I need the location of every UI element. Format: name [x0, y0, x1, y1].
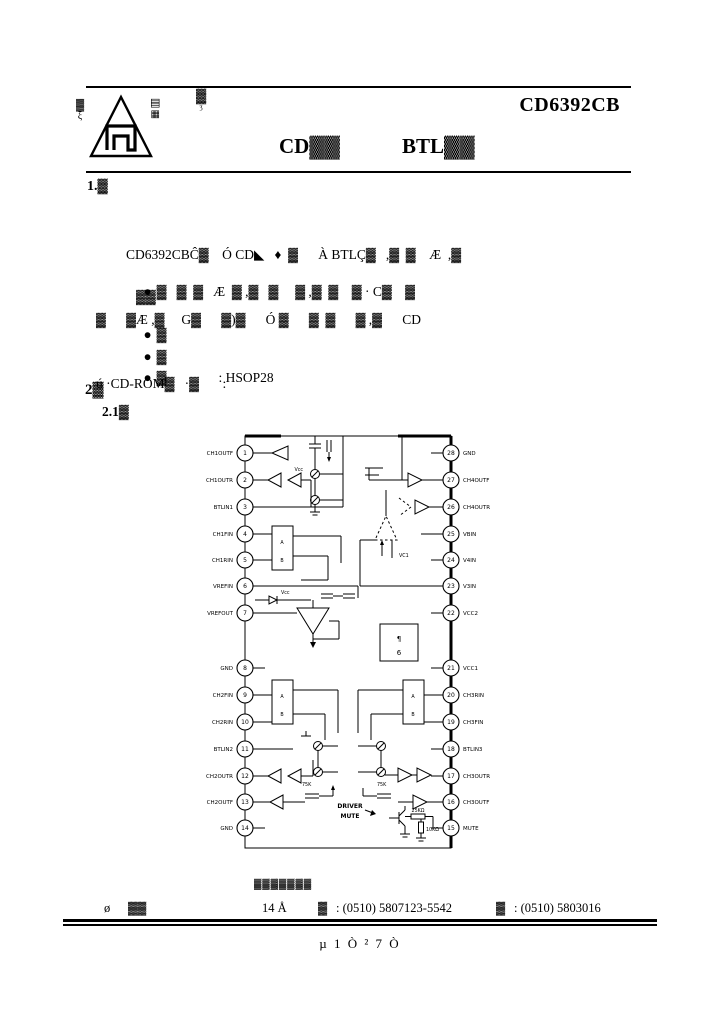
- footer-address-blob: ▓▓: [128, 901, 146, 916]
- pin-28: 28GND: [431, 445, 476, 461]
- ic-body: [245, 436, 451, 848]
- pin-6: 6VREFIN: [213, 578, 265, 594]
- amp-a-label: A: [280, 694, 284, 700]
- pin-label: CH3OUTR: [463, 774, 490, 780]
- pin-8: 8GND: [220, 660, 265, 676]
- pin-label: CH3FIN: [463, 720, 483, 726]
- pin-15: 15MUTE: [431, 820, 479, 836]
- pin-label: BTLIN1: [214, 505, 233, 511]
- pin-number: 27: [447, 477, 455, 484]
- pin-label: BTLIN2: [214, 747, 233, 753]
- pin-number: 3: [243, 504, 247, 511]
- footer-mark: ø: [104, 901, 110, 916]
- pin-label: CH1FIN: [213, 532, 233, 538]
- pin-number: 15: [447, 825, 455, 832]
- pin-25: 25VBIN: [431, 526, 476, 542]
- paragraph-line: CD6392CBĈ▓ Ó CD◣ ♦ ▓ À BTLÇ▓ ,▓ ▓ Æ ,▓: [96, 244, 632, 266]
- pin-label: GND: [220, 826, 233, 832]
- pin-4: 4CH1FIN: [213, 526, 265, 542]
- pin-label: CH2FIN: [213, 693, 233, 699]
- internal-circuit: [253, 436, 443, 841]
- amp-b-label: B: [280, 712, 283, 718]
- pin-14: 14GND: [220, 820, 265, 836]
- pin-label: CH4OUTR: [463, 505, 490, 511]
- pin-number: 8: [243, 665, 247, 672]
- pin-11: 11BTLIN2: [214, 741, 265, 757]
- vcc-label: Vcc: [294, 467, 303, 473]
- pin-number: 4: [243, 531, 247, 538]
- center-block-glyph: 6: [397, 649, 402, 657]
- pin-number: 7: [243, 610, 247, 617]
- pin-number: 12: [241, 773, 249, 780]
- pin-label: CH2RIN: [212, 720, 233, 726]
- footer-address-no: 14 Å: [262, 901, 287, 916]
- company-logo: [88, 92, 154, 162]
- amp-b-label: B: [411, 712, 414, 718]
- pin-label: CH1OUTR: [206, 478, 233, 484]
- pin-label: GND: [220, 666, 233, 672]
- pin-27: 27CH4OUTF: [431, 472, 489, 488]
- company-name: ▓▓▓▓▓▓▓: [254, 879, 312, 890]
- pin-number: 25: [447, 531, 455, 538]
- logo-spiral-glyph: [107, 126, 135, 150]
- pin-number: 11: [241, 746, 249, 753]
- pin-number: 16: [447, 799, 455, 806]
- pin-21: 21VCC1: [431, 660, 478, 676]
- pin-7: 7VREFOUT: [207, 605, 265, 621]
- pin-5: 5CH1RIN: [212, 552, 265, 568]
- tel-label: ▓: [318, 901, 327, 916]
- pin-number: 6: [243, 583, 247, 590]
- pin-9: 9CH2FIN: [213, 687, 265, 703]
- pin-label: VREFIN: [213, 584, 233, 590]
- pin-number: 28: [447, 450, 455, 457]
- tel-number: : (0510) 5807123-5542: [336, 901, 452, 916]
- pin-number: 2: [243, 477, 247, 484]
- left-pins: 1CH1OUTF2CH1OUTR3BTLIN14CH1FIN5CH1RIN6VR…: [206, 445, 265, 836]
- pin-label: VCC2: [463, 611, 478, 617]
- pin-label: VCC1: [463, 666, 478, 672]
- pin-number: 18: [447, 746, 455, 753]
- pin-23: 23V3IN: [431, 578, 476, 594]
- pin-number: 22: [447, 610, 455, 617]
- section1-paragraph: CD6392CBĈ▓ Ó CD◣ ♦ ▓ À BTLÇ▓ ,▓ ▓ Æ ,▓ ▓…: [96, 201, 632, 438]
- pin-label: CH1OUTF: [207, 451, 233, 457]
- pin-16: 16CH3OUTF: [431, 794, 489, 810]
- feature-bullet-1-cont: ▓▓: [136, 289, 156, 305]
- pin-label: MUTE: [463, 826, 479, 832]
- pin-12: 12CH2OUTR: [206, 768, 265, 784]
- feature-bullet-package: ●▓: HSOP28: [130, 354, 274, 402]
- pin-18: 18BTLIN3: [431, 741, 483, 757]
- pin-22: 22VCC2: [431, 605, 478, 621]
- pin-number: 9: [243, 692, 247, 699]
- amp-a-label: A: [280, 540, 284, 546]
- feature-bullet-1: ●▓ ▓ ▓ Æ ▓ ,▓ ▓ ▓ ,▓ ▓ ▓ · C▓ ▓: [130, 268, 415, 316]
- pin-label: CH4OUTF: [463, 478, 489, 484]
- pin-label: CH2OUTF: [207, 800, 233, 806]
- ic-block-diagram: Vcc Vcc VC1 A B A B A B ¶ 6 DRIVER MUTE …: [193, 428, 538, 860]
- section2-subheading: 2.1▓: [102, 404, 129, 420]
- pin-number: 13: [241, 799, 249, 806]
- pin-19: 19CH3FIN: [431, 714, 483, 730]
- pin-1: 1CH1OUTF: [207, 445, 265, 461]
- datasheet-page: ▓ ξ ▤ ▦ ▓ ʒ CD6392CB CD▓▓ BTL▓▓ 1.▓ CD63…: [0, 0, 720, 1012]
- amp-a-label: A: [411, 694, 415, 700]
- pin-label: CH3RIN: [463, 693, 484, 699]
- header-top-rule: [86, 86, 631, 88]
- vc1-label: VC1: [399, 553, 409, 559]
- fax-label: ▓: [496, 901, 505, 916]
- pin-13: 13CH2OUTF: [207, 794, 265, 810]
- pin-number: 23: [447, 583, 455, 590]
- footer-rule-thick: [63, 919, 657, 922]
- pin-number: 17: [447, 773, 455, 780]
- pin-number: 24: [447, 557, 455, 564]
- pin-number: 21: [447, 665, 455, 672]
- center-block-glyph: ¶: [397, 635, 401, 643]
- resistor-25k-label: 25KΩ: [412, 808, 425, 814]
- pin-number: 10: [241, 719, 249, 726]
- pin-3: 3BTLIN1: [214, 499, 265, 515]
- pin-20: 20CH3RIN: [431, 687, 484, 703]
- pin-label: GND: [463, 451, 476, 457]
- pin-number: 26: [447, 504, 455, 511]
- doc-title-btl: BTL▓▓: [402, 134, 475, 159]
- footer-rule-thin: [63, 924, 657, 926]
- amp-b-label: B: [280, 558, 283, 564]
- pin-number: 5: [243, 557, 247, 564]
- header-bottom-rule: [86, 171, 631, 173]
- section2-heading: 2▓: [85, 382, 103, 399]
- package-type: : HSOP28: [219, 370, 274, 385]
- pin-10: 10CH2RIN: [212, 714, 265, 730]
- pin-26: 26CH4OUTR: [431, 499, 490, 515]
- section1-heading: 1.▓: [87, 179, 108, 195]
- circuit-text-labels: Vcc Vcc VC1 A B A B A B ¶ 6 DRIVER MUTE …: [280, 467, 439, 833]
- pin-label: V3IN: [463, 584, 476, 590]
- pin-label: V4IN: [463, 558, 476, 564]
- pin-label: VBIN: [463, 532, 476, 538]
- pin-2: 2CH1OUTR: [206, 472, 265, 488]
- bullet-icon: ●: [144, 370, 152, 385]
- logo-right-characters: ▤ ▦: [150, 98, 160, 120]
- header-stamp-glyph: ▓ ʒ: [196, 92, 206, 112]
- vcc-ref-label: Vcc: [281, 590, 290, 596]
- part-number: CD6392CB: [470, 94, 620, 117]
- right-pins: 28GND27CH4OUTF26CH4OUTR25VBIN24V4IN23V3I…: [431, 445, 490, 836]
- driver-mute-label: DRIVER: [337, 803, 363, 810]
- resistor-75-label: 75K: [302, 782, 312, 788]
- pin-label: VREFOUT: [207, 611, 234, 617]
- page-indicator: µ 1 Ò ² 7 Ò: [0, 936, 720, 952]
- pin-label: BTLIN3: [463, 747, 483, 753]
- pin-number: 1: [243, 450, 247, 457]
- pin-number: 19: [447, 719, 455, 726]
- pin-24: 24V4IN: [431, 552, 476, 568]
- driver-mute-label: MUTE: [340, 813, 359, 820]
- pin-label: CH2OUTR: [206, 774, 233, 780]
- pin-label: CH1RIN: [212, 558, 233, 564]
- resistor-75-label: 75K: [377, 782, 387, 788]
- fax-number: : (0510) 5803016: [514, 901, 601, 916]
- logo-left-characters: ▓ ξ: [76, 100, 84, 122]
- pin-17: 17CH3OUTR: [431, 768, 490, 784]
- pin-number: 20: [447, 692, 455, 699]
- pin-number: 14: [241, 825, 249, 832]
- doc-title-cd: CD▓▓: [279, 134, 340, 159]
- pin-label: CH3OUTF: [463, 800, 489, 806]
